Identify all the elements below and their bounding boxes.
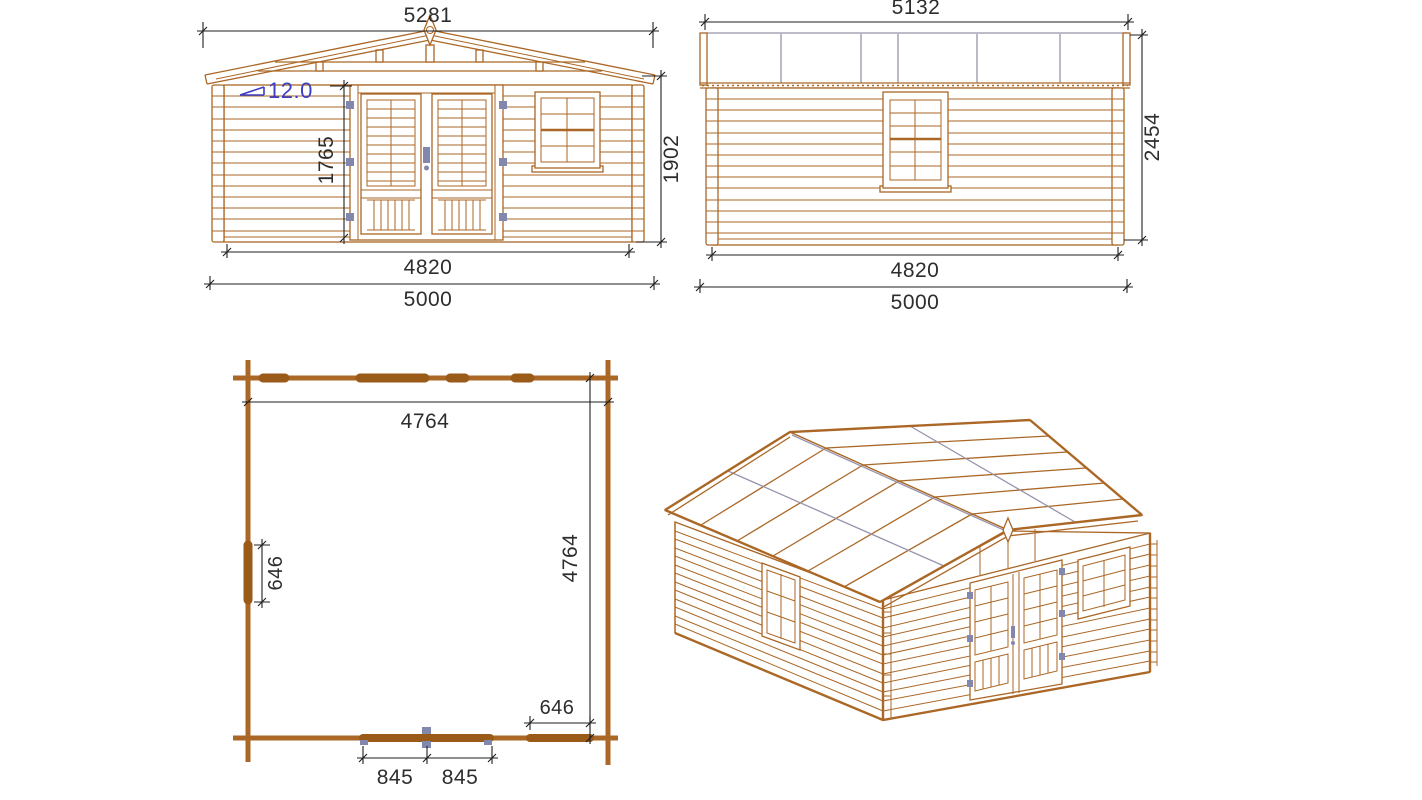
side-dim-wall-length: 4820 — [891, 259, 940, 282]
side-elevation-view: 5132 2454 4820 5000 — [690, 0, 1170, 320]
side-dim-overall-length: 5000 — [891, 291, 940, 314]
plan-dim-inner-width: 4764 — [401, 410, 450, 433]
plan-dim-door-leaf-left: 845 — [377, 766, 414, 789]
side-roof — [700, 33, 1130, 88]
front-double-door — [346, 85, 507, 240]
plan-dim-inner-depth: 4764 — [559, 534, 582, 583]
cabin-technical-drawing: 5281 12.0 1765 1902 4820 5000 — [0, 0, 1422, 800]
side-dim-roof-length: 5132 — [892, 0, 941, 19]
front-dim-wall-height: 1902 — [660, 135, 680, 184]
side-dim-overall-height: 2454 — [1141, 113, 1164, 162]
floor-plan-view: 4764 4764 646 646 845 845 — [200, 350, 650, 800]
iso-side-window — [762, 563, 800, 650]
front-elevation-view: 5281 12.0 1765 1902 4820 5000 — [180, 0, 680, 320]
front-dim-door-height: 1765 — [315, 136, 338, 185]
plan-dim-front-window: 646 — [540, 697, 575, 719]
front-dim-overall-width: 5000 — [404, 288, 453, 311]
side-window — [880, 92, 951, 192]
isometric-view — [650, 400, 1210, 800]
iso-front-window — [1078, 547, 1130, 619]
plan-dim-door-leaf-right: 845 — [442, 766, 479, 789]
front-dim-roof-slope: 12.0 — [268, 78, 313, 103]
plan-dimensions: 4764 4764 646 646 845 845 — [242, 372, 614, 789]
iso-double-door — [967, 560, 1065, 700]
iso-door-handle — [1011, 626, 1015, 645]
front-dim-roof-width: 5281 — [404, 4, 453, 27]
front-dim-wall-width: 4820 — [404, 256, 453, 279]
front-window — [532, 92, 603, 172]
plan-dim-side-window: 646 — [265, 556, 287, 591]
